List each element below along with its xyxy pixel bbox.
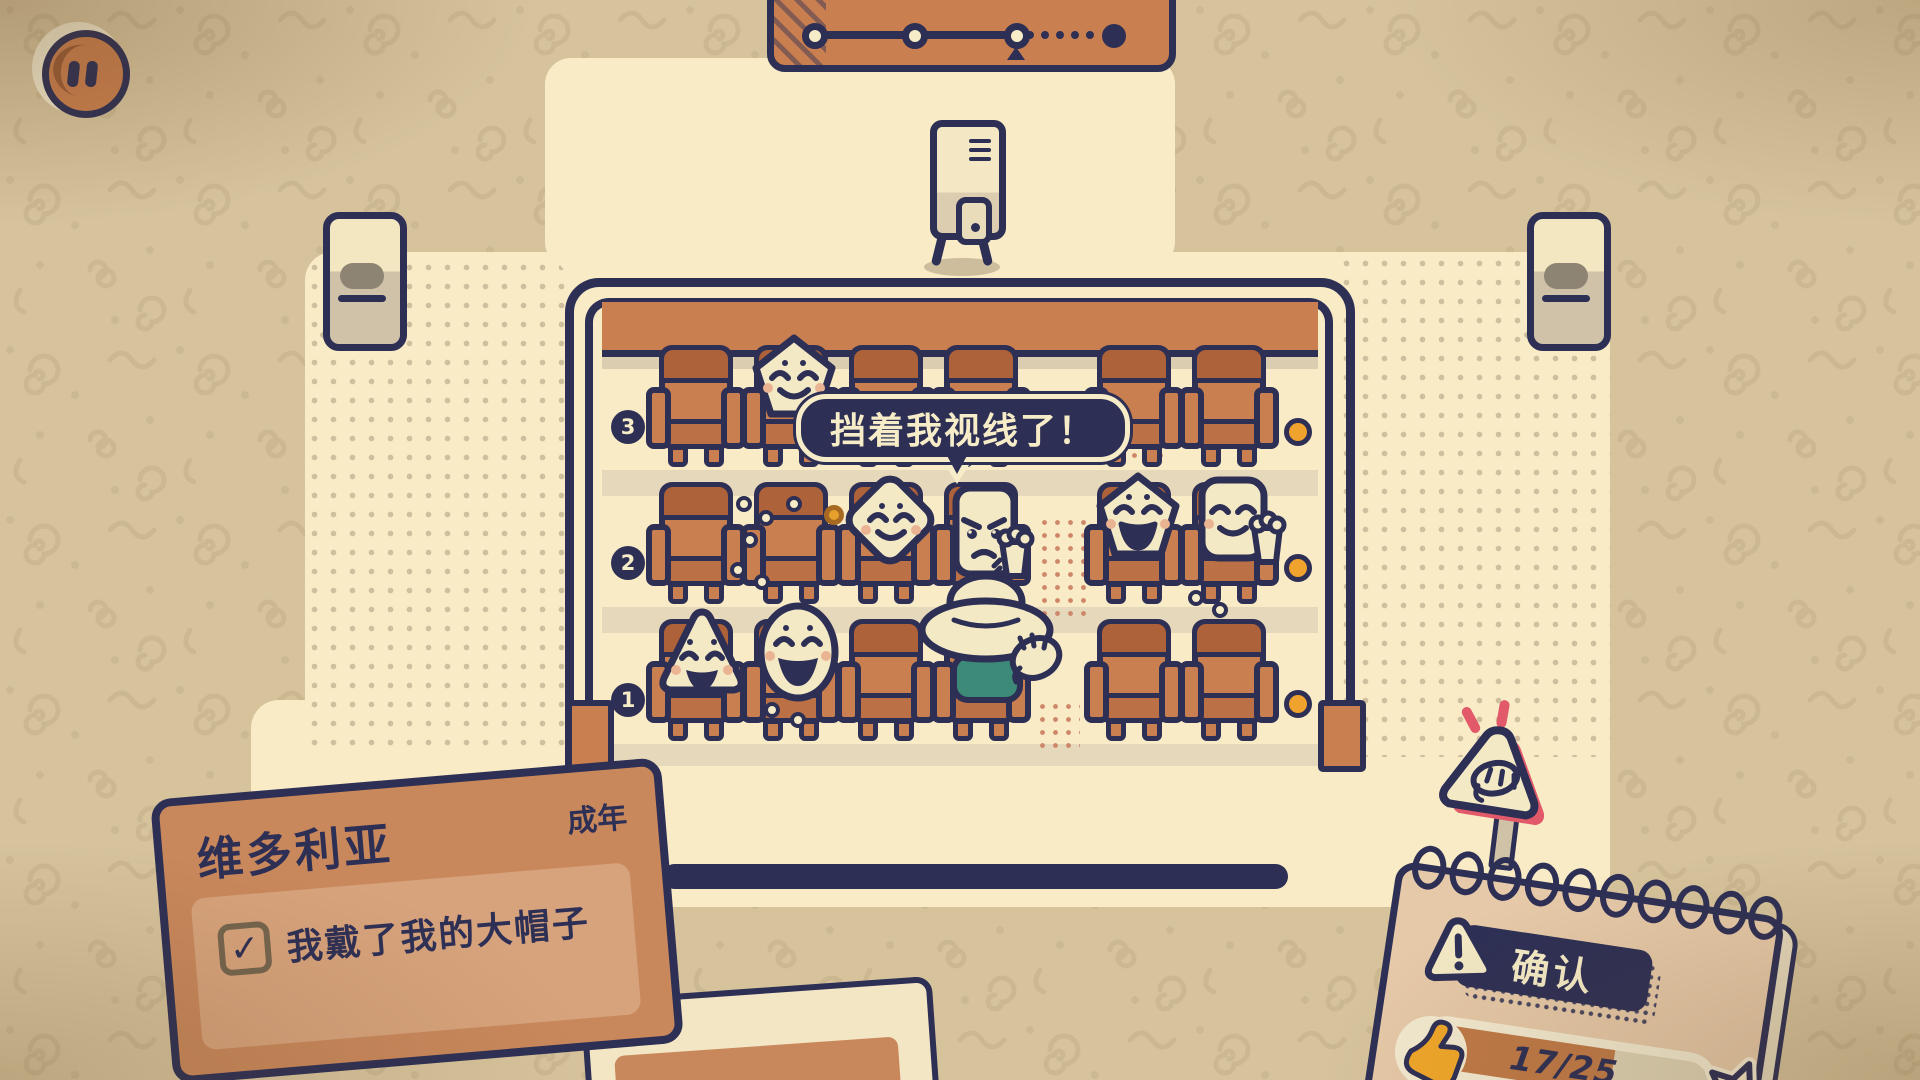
guest-card[interactable]: 维多利亚 成年 ✓ 我戴了我的大帽子	[150, 757, 684, 1080]
movie-screen-bar	[662, 864, 1288, 889]
timeline-position-marker	[1007, 47, 1025, 60]
timeline-node-3	[1004, 23, 1030, 49]
vent-icon	[969, 148, 991, 152]
speaker-slot-icon	[338, 295, 386, 302]
seat-r3-l1[interactable]	[652, 345, 740, 467]
lobby-floor-top	[545, 58, 1175, 268]
warning-triangle-icon	[1418, 912, 1500, 986]
trait-checkbox-checked: ✓	[217, 921, 273, 977]
guest-name: 维多利亚	[194, 808, 395, 890]
projector-lens-icon	[956, 197, 992, 245]
walkway-stripe	[602, 744, 1318, 766]
speaker-left	[323, 212, 407, 351]
speaker-right	[1527, 212, 1611, 351]
pause-button[interactable]	[42, 30, 130, 118]
trait-item: ✓ 我戴了我的大帽子	[217, 894, 592, 977]
vent-icon	[969, 139, 991, 143]
seat-r1-r2[interactable]	[1185, 619, 1273, 741]
level-timeline-panel	[767, 0, 1176, 72]
speaker-grill-icon	[1544, 263, 1588, 289]
pause-icon	[67, 60, 81, 87]
guest-age-tag: 成年	[565, 792, 628, 841]
thumbs-up-icon	[1384, 1004, 1479, 1080]
row-end-dot	[1284, 690, 1312, 718]
character-triangle-laugher[interactable]	[650, 600, 754, 706]
confirm-notepad: 确认 17/25	[1359, 860, 1786, 1080]
vent-icon	[969, 157, 991, 161]
timeline-node-2	[902, 23, 928, 49]
popcorn-cup-icon	[1251, 513, 1284, 562]
timeline-end-node	[1102, 24, 1126, 48]
timeline-node-1	[802, 23, 828, 49]
confirm-button-label: 确认	[1508, 935, 1599, 1002]
popcorn-kernels	[1186, 588, 1236, 624]
seat-r3-r2[interactable]	[1185, 345, 1273, 467]
seat-r2-l1[interactable]	[652, 482, 740, 604]
game-screen: 3 2 1	[0, 0, 1920, 1080]
frame-post-right	[1318, 700, 1366, 772]
row-label-1: 1	[611, 683, 645, 717]
speaker-grill-icon	[340, 263, 384, 289]
speech-bubble-tail	[945, 452, 969, 474]
thumbs-down-sign	[1426, 709, 1562, 838]
speaker-slot-icon	[1542, 295, 1590, 302]
popcorn-kernels	[730, 492, 810, 602]
character-square-snacker[interactable]	[1182, 466, 1294, 576]
trait-text: 我戴了我的大帽子	[284, 894, 591, 971]
projector-body	[930, 120, 1006, 240]
character-oval-laugher[interactable]	[746, 596, 850, 708]
character-pentagon-laugher[interactable]	[1088, 466, 1188, 570]
popcorn-kernels	[762, 698, 822, 734]
seat-r1-r1[interactable]	[1090, 619, 1178, 741]
row-end-dot	[1284, 418, 1312, 446]
guest-traits-panel: ✓ 我戴了我的大帽子	[190, 862, 641, 1050]
timeline-dotted-segment	[1026, 31, 1094, 39]
projector	[930, 120, 994, 270]
aisle-halftone-decor	[1036, 700, 1080, 752]
row-label-2: 2	[611, 546, 645, 580]
pause-icon	[85, 60, 99, 87]
character-victoria[interactable]	[898, 556, 1074, 706]
row-label-3: 3	[611, 410, 645, 444]
